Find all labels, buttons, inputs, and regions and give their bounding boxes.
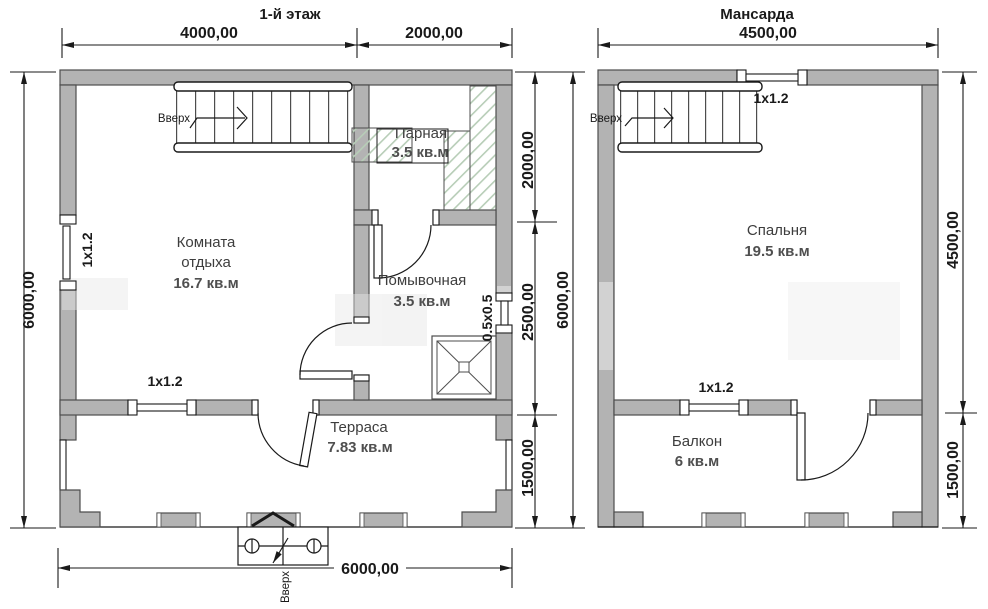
floor1-dim-right-seg2: 2500,00 [520,283,537,341]
floor1-dim-top-left: 4000,00 [180,25,238,42]
floor1-title: 1-й этаж [259,6,321,23]
attic-dim-right-seg1: 4500,00 [945,211,962,269]
floorplan-canvas: 1-й этаж 4000,00 2000,00 6000,00 2000,00… [0,0,988,609]
shower-tray [432,336,496,399]
floor1-dim-top-right: 2000,00 [405,25,463,42]
attic-title: Мансарда [720,6,794,23]
attic-dim-top: 4500,00 [739,25,797,42]
room-area-steam: 3.5 кв.м [391,144,448,161]
room-area-bedroom: 19.5 кв.м [744,243,809,260]
room-area-balcony: 6 кв.м [675,453,720,470]
entrance-steps [238,527,328,565]
room-label-balcony: Балкон [672,433,722,450]
room-area-rest: 16.7 кв.м [173,275,238,292]
window-label-floor1-right: 0.5х0.5 [479,294,495,341]
floor1-dim-bottom-total: 6000,00 [341,561,399,578]
window-label-floor1-left: 1х1.2 [79,232,95,267]
room-area-wash: 3.5 кв.м [393,293,450,310]
floor1-dim-left-total: 6000,00 [21,271,38,329]
entrance-up-label: Вверх [280,571,292,603]
room-label-bedroom: Спальня [747,222,807,239]
floor1-dim-right-seg1: 2000,00 [520,131,537,189]
stairs-up-label-floor1: Вверх [158,113,190,125]
floor1-dim-right-seg3: 1500,00 [520,439,537,497]
room-label-terrace: Терраса [330,419,388,436]
stairs-attic [618,82,762,152]
room-label-rest-line2: отдыха [181,254,231,271]
room-label-rest-line1: Комната [177,234,236,251]
window-label-floor1-bottom: 1х1.2 [147,373,182,389]
window-label-attic-middle: 1х1.2 [698,379,733,395]
stairs-up-label-attic: Вверх [590,113,622,125]
room-label-steam: Парная [395,125,447,142]
attic-dim-right-seg2: 1500,00 [945,441,962,499]
window-label-attic-top: 1х1.2 [753,90,788,106]
room-area-terrace: 7.83 кв.м [327,439,392,456]
floor1-dim-right-total: 6000,00 [555,271,572,329]
stairs-floor1 [174,82,352,152]
room-label-wash: Помывочная [378,272,467,289]
